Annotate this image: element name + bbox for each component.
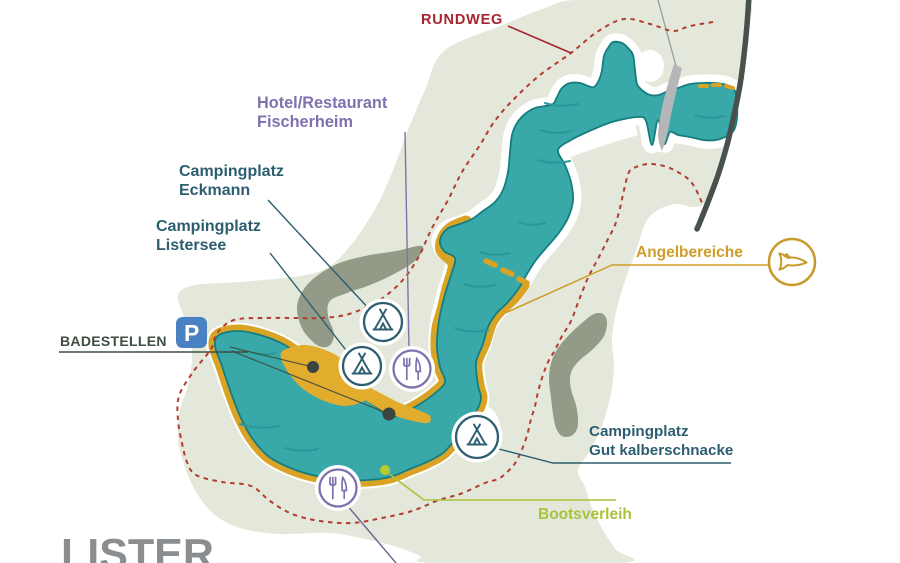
svg-text:Gut kalberschnacke: Gut kalberschnacke [589,442,733,459]
svg-text:Campingplatz: Campingplatz [179,163,284,180]
svg-text:Hotel/Restaurant: Hotel/Restaurant [257,94,388,112]
svg-text:P: P [184,320,199,346]
svg-text:Fischerheim: Fischerheim [257,113,353,131]
svg-text:BADESTELLEN: BADESTELLEN [60,333,167,349]
svg-text:Eckmann: Eckmann [179,182,250,199]
svg-text:Campingplatz: Campingplatz [589,423,689,440]
svg-text:Listersee: Listersee [156,237,226,254]
svg-text:Campingplatz: Campingplatz [156,218,261,235]
svg-text:Angelbereiche: Angelbereiche [636,244,743,261]
svg-text:Bootsverleih: Bootsverleih [538,506,632,523]
svg-text:LISTER: LISTER [61,531,214,563]
svg-text:RUNDWEG: RUNDWEG [421,12,503,28]
